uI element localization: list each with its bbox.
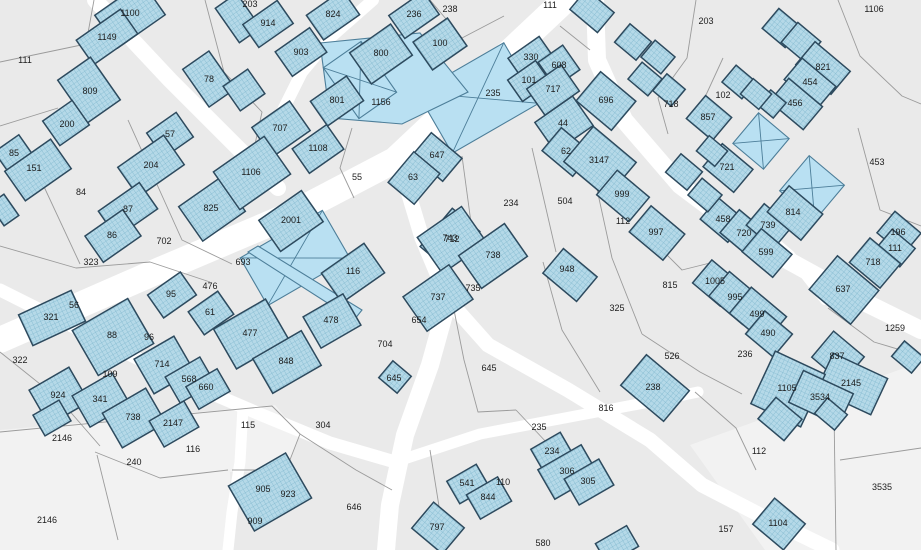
parcel-number-label: 238	[645, 382, 660, 392]
parcel-number-label: 948	[559, 264, 574, 274]
parcel-number-label: 914	[260, 18, 275, 28]
parcel-number-label: 111	[18, 55, 32, 65]
parcel-number-label: 2146	[52, 433, 72, 443]
parcel-number-label: 102	[715, 90, 730, 100]
parcel-number-label: 236	[406, 9, 421, 19]
parcel-number-label: 825	[203, 203, 218, 213]
parcel-number-label: 702	[156, 236, 171, 246]
parcel-number-label: 204	[143, 160, 158, 170]
parcel-number-label: 95	[166, 289, 176, 299]
parcel-number-label: 203	[242, 0, 257, 9]
parcel-number-label: 824	[325, 9, 340, 19]
parcel-number-label: 236	[737, 349, 752, 359]
parcel-number-label: 814	[785, 207, 800, 217]
map-viewport[interactable]: 1111100114980920078572039148249032362381…	[0, 0, 921, 550]
parcel-number-label: 800	[373, 48, 388, 58]
parcel-number-label: 115	[241, 420, 255, 430]
parcel-number-label: 112	[752, 446, 766, 456]
parcel-number-label: 526	[664, 351, 679, 361]
parcel-number-label: 737	[430, 292, 445, 302]
parcel-number-label: 1149	[97, 32, 116, 42]
parcel-number-label: 3535	[872, 482, 892, 492]
parcel-number-label: 739	[760, 220, 775, 230]
parcel-number-label: 568	[181, 374, 196, 384]
parcel-number-label: 696	[598, 95, 613, 105]
parcel-number-label: 848	[278, 356, 293, 366]
parcel-number-label: 997	[648, 227, 663, 237]
parcel-number-label: 305	[580, 476, 595, 486]
parcel-number-label: 905	[255, 484, 270, 494]
parcel-number-label: 111	[543, 0, 557, 10]
parcel-number-label: 306	[559, 466, 574, 476]
parcel-number-label: 109	[102, 369, 117, 379]
parcel-number-label: 844	[480, 492, 495, 502]
parcel-number-label: 1156	[371, 97, 390, 107]
parcel-number-label: 1104	[768, 518, 787, 528]
parcel-number-label: 580	[535, 538, 550, 548]
parcel-number-label: 735	[465, 283, 480, 293]
parcel-number-label: 704	[377, 339, 392, 349]
parcel-number-label: 857	[700, 112, 715, 122]
parcel-number-label: 304	[315, 420, 330, 430]
parcel-number-label: 3147	[589, 155, 609, 165]
parcel-number-label: 453	[869, 157, 884, 167]
parcel-number-label: 235	[485, 88, 500, 98]
parcel-number-label: 1100	[120, 8, 139, 18]
parcel-number-label: 100	[432, 38, 447, 48]
parcel-number-label: 801	[329, 95, 344, 105]
parcel-number-label: 1108	[308, 143, 327, 153]
parcel-number-label: 821	[815, 62, 830, 72]
parcel-number-label: 84	[76, 187, 86, 197]
parcel-number-label: 707	[272, 123, 287, 133]
parcel-number-label: 88	[107, 330, 117, 340]
parcel-number-label: 646	[346, 502, 361, 512]
parcel-number-label: 718	[663, 99, 678, 109]
parcel-number-label: 693	[235, 257, 250, 267]
parcel-number-label: 96	[144, 332, 154, 342]
parcel-number-label: 456	[787, 98, 802, 108]
parcel-number-label: 454	[802, 77, 817, 87]
parcel-number-label: 717	[545, 84, 560, 94]
parcel-number-label: 647	[429, 150, 444, 160]
parcel-number-label: 654	[411, 315, 426, 325]
parcel-number-label: 78	[204, 74, 214, 84]
parcel-number-label: 341	[92, 394, 107, 404]
parcel-number-label: 718	[865, 257, 880, 267]
parcel-number-label: 458	[715, 214, 730, 224]
parcel-number-label: 738	[485, 250, 500, 260]
parcel-number-label: 809	[82, 86, 97, 96]
parcel-number-label: 816	[598, 403, 613, 413]
parcel-number-label: 116	[346, 266, 360, 276]
parcel-number-label: 157	[718, 524, 733, 534]
parcel-number-label: 116	[186, 444, 200, 454]
parcel-number-label: 637	[835, 284, 850, 294]
parcel-number-label: 999	[614, 189, 629, 199]
parcel-number-label: 111	[888, 243, 902, 253]
parcel-number-label: 87	[123, 204, 133, 214]
parcel-number-label: 112	[616, 216, 630, 226]
parcel-number-label: 85	[9, 148, 19, 158]
parcel-number-label: 1106	[864, 4, 883, 14]
parcel-number-label: 1106	[241, 167, 260, 177]
parcel-number-label: 903	[293, 47, 308, 57]
parcel-number-label: 234	[544, 446, 559, 456]
parcel-number-label: 2146	[37, 515, 57, 525]
parcel-number-label: 240	[126, 457, 141, 467]
parcel-number-label: 1005	[705, 276, 725, 286]
parcel-number-label: 909	[247, 516, 262, 526]
parcel-number-label: 321	[43, 312, 58, 322]
parcel-number-label: 797	[429, 522, 444, 532]
parcel-number-label: 714	[154, 359, 169, 369]
parcel-number-label: 2001	[281, 215, 301, 225]
parcel-number-label: 660	[198, 382, 213, 392]
parcel-number-label: 325	[609, 303, 624, 313]
parcel-number-label: 203	[698, 16, 713, 26]
parcel-number-label: 923	[280, 489, 295, 499]
parcel-number-label: 504	[557, 196, 572, 206]
parcel-number-label: 608	[551, 60, 566, 70]
parcel-number-label: 234	[503, 198, 518, 208]
parcel-number-label: 235	[531, 422, 546, 432]
parcel-number-label: 44	[558, 118, 568, 128]
parcel-number-label: 322	[12, 355, 27, 365]
parcel-number-label: 995	[727, 292, 742, 302]
parcel-number-label: 323	[83, 257, 98, 267]
parcel-number-label: 720	[736, 228, 751, 238]
parcel-number-label: 196	[890, 227, 905, 237]
parcel-number-label: 57	[165, 129, 175, 139]
cadastral-map-canvas[interactable]: 1111100114980920078572039148249032362381…	[0, 0, 921, 550]
parcel-number-label: 490	[760, 328, 775, 338]
parcel-number-label: 238	[442, 4, 457, 14]
parcel-number-label: 2145	[841, 378, 861, 388]
parcel-number-label: 330	[523, 52, 538, 62]
parcel-number-label: 86	[107, 230, 117, 240]
parcel-number-label: 1105	[777, 383, 796, 393]
parcel-number-label: 55	[352, 172, 362, 182]
parcel-number-label: 110	[496, 477, 510, 487]
parcel-number-label: 2147	[163, 418, 183, 428]
parcel-number-label: 721	[719, 162, 734, 172]
parcel-number-label: 815	[662, 280, 677, 290]
parcel-number-label: 56	[69, 300, 79, 310]
parcel-number-label: 200	[59, 119, 74, 129]
parcel-number-label: 478	[323, 315, 338, 325]
parcel-number-label: 476	[202, 281, 217, 291]
parcel-number-label: 738	[125, 412, 140, 422]
parcel-number-label: 837	[829, 351, 844, 361]
parcel-number-label: 645	[481, 363, 496, 373]
parcel-number-label: 645	[386, 373, 401, 383]
parcel-number-label: 151	[26, 163, 41, 173]
parcel-number-label: 61	[205, 307, 215, 317]
parcel-number-label: 599	[758, 247, 773, 257]
parcel-number-label: 101	[521, 75, 536, 85]
parcel-number-label: 63	[408, 172, 418, 182]
parcel-number-label: 477	[242, 328, 257, 338]
parcel-number-label: 712	[444, 234, 459, 244]
parcel-number-label: 1259	[885, 323, 905, 333]
parcel-number-label: 62	[561, 146, 571, 156]
parcel-number-label: 499	[749, 309, 764, 319]
parcel-number-label: 3534	[810, 392, 830, 402]
parcel-number-label: 924	[50, 390, 65, 400]
parcel-number-label: 541	[459, 478, 474, 488]
